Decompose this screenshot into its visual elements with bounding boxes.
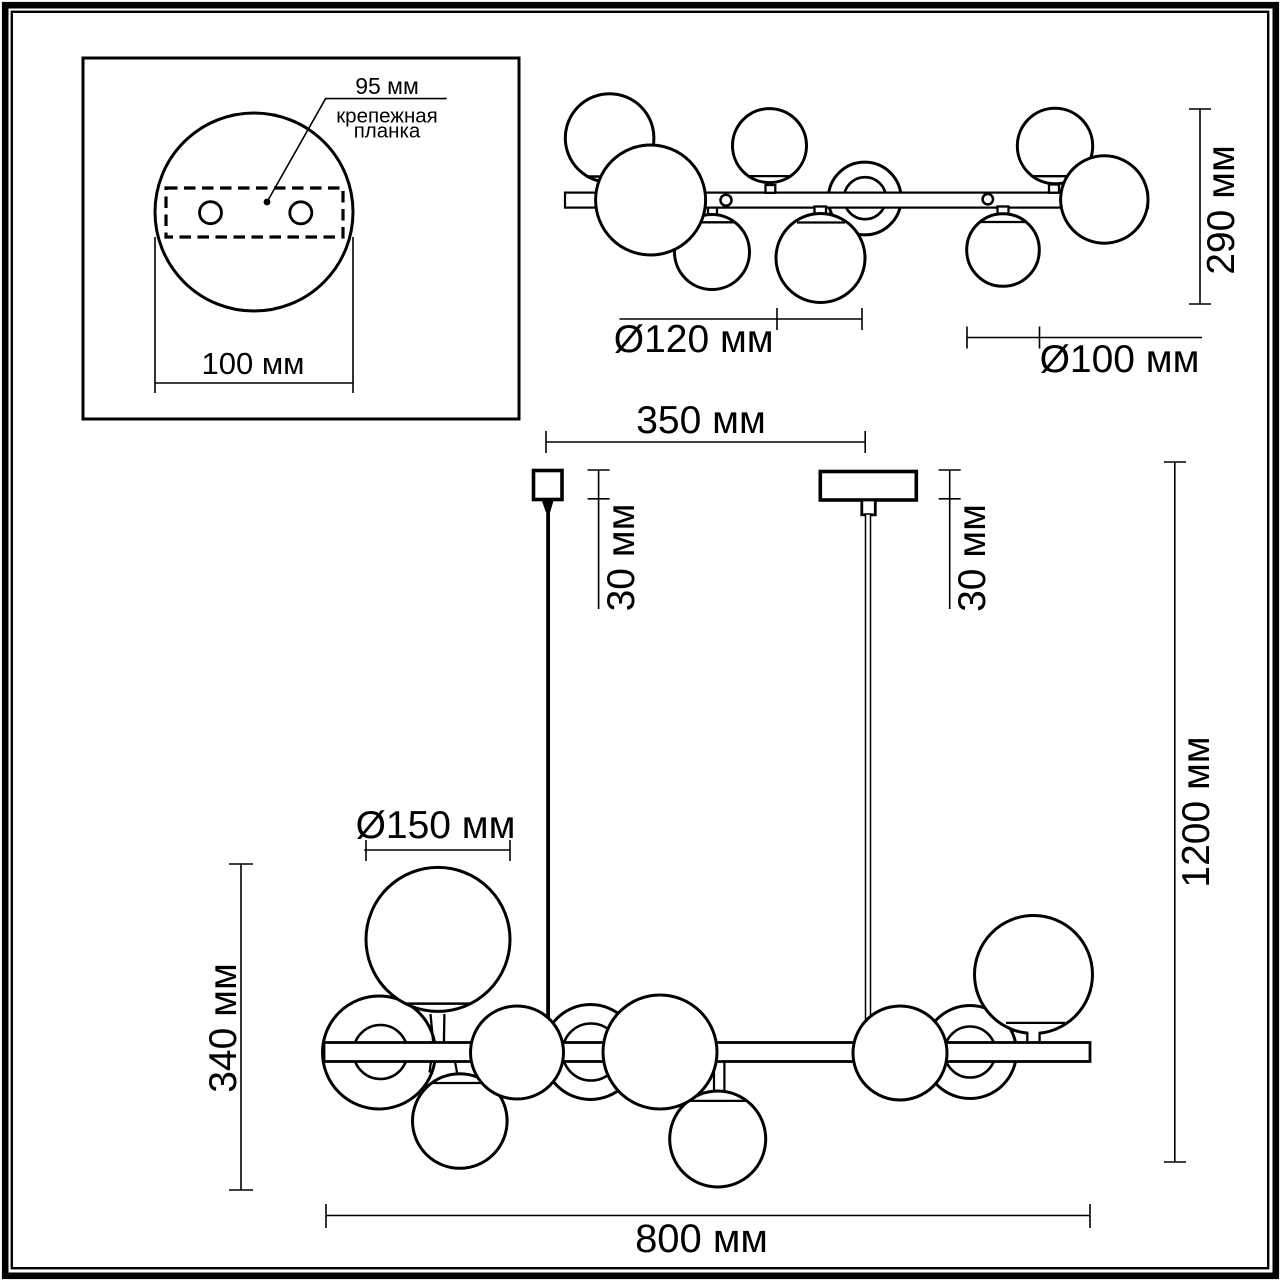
- svg-text:800 мм: 800 мм: [635, 1217, 768, 1261]
- svg-text:30 мм: 30 мм: [600, 504, 643, 612]
- svg-text:100 мм: 100 мм: [202, 346, 305, 381]
- svg-text:350 мм: 350 мм: [636, 399, 766, 442]
- svg-text:Ø150 мм: Ø150 мм: [356, 804, 516, 847]
- svg-text:Ø120 мм: Ø120 мм: [614, 318, 774, 361]
- svg-text:планка: планка: [354, 120, 421, 143]
- svg-text:290 мм: 290 мм: [1200, 145, 1243, 275]
- svg-text:Ø100 мм: Ø100 мм: [1040, 338, 1200, 381]
- svg-text:95 мм: 95 мм: [355, 73, 419, 99]
- svg-text:30 мм: 30 мм: [951, 504, 994, 612]
- svg-text:340 мм: 340 мм: [202, 963, 245, 1093]
- svg-text:1200 мм: 1200 мм: [1175, 736, 1218, 887]
